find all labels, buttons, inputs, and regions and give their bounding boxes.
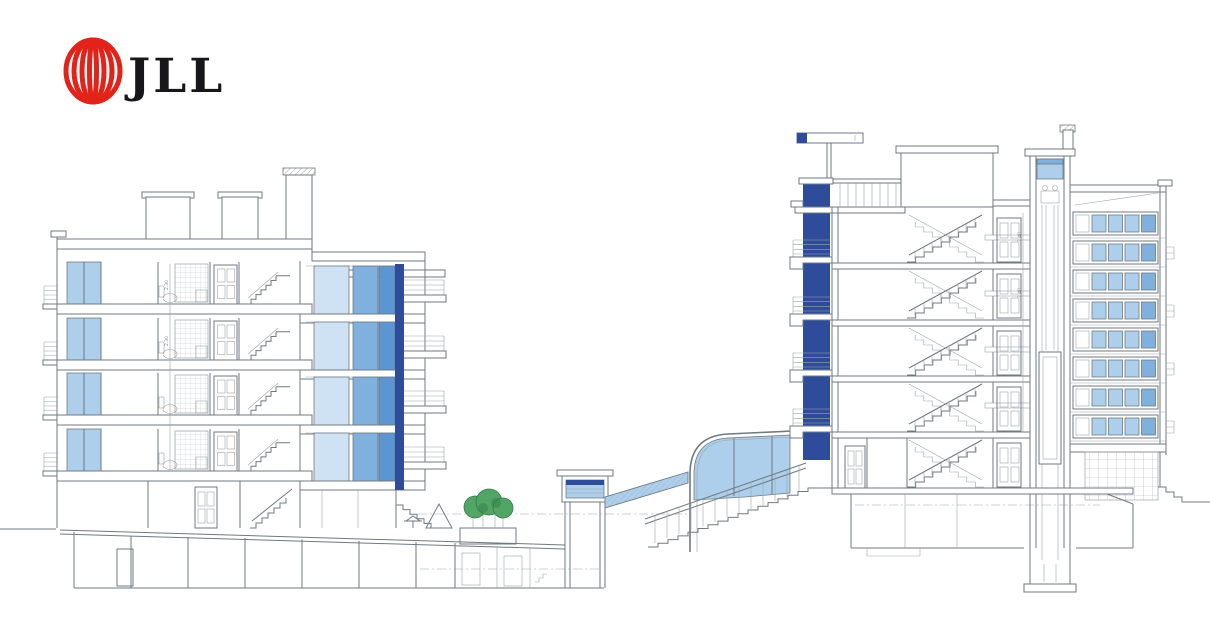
cellar-door [504,556,522,586]
roof-sign [797,133,863,179]
curved-glass-atrium [690,431,793,552]
stair-flight [907,328,984,375]
left-floor-module [43,318,312,370]
glazed-floor-module [300,433,446,490]
dim-label: 2.30 [164,280,170,290]
jll-logo-mark [66,40,120,102]
left-building-section: 2.30 2.30 [43,168,446,528]
window-row [1070,299,1166,325]
navy-mullion-stripe [395,264,404,490]
window-row [1070,415,1166,441]
window-row [1070,270,1166,296]
dim-label: 2.40 [1017,288,1023,298]
window-row [1070,386,1166,412]
stair-flight [907,384,984,431]
landing-door [997,331,1021,375]
stair-flight [907,440,984,487]
glazed-floor-module [300,322,446,379]
planter [460,528,516,544]
underground-garage [60,530,604,588]
shaft-skylight [557,470,613,588]
window-row [1070,357,1166,383]
stair-flight [907,215,984,262]
garden-area [404,470,688,588]
landing-doors [997,218,1021,487]
penthouse [901,153,993,207]
play-tent [426,504,452,528]
parasol [404,521,422,528]
window-row [1070,241,1166,267]
jll-logo: JLL [66,40,225,104]
window-row [1070,328,1166,354]
stair-flight [907,271,984,318]
left-floor-module [43,429,312,481]
hoist-machine [1041,186,1059,204]
right-building-section: 2.40 2.40 [790,125,1182,592]
chimney-cap [283,168,315,175]
penthouse-cap [896,146,998,153]
glazed-floor-module [300,377,446,434]
trees [464,489,513,528]
landing-door [997,443,1021,487]
drawing-page: JLL [0,0,1210,638]
elevator-pit [1024,584,1076,592]
sloped-skylight [605,472,688,508]
right-building-basement [851,494,1133,556]
elevator-mast [1063,130,1073,149]
left-building-roof [51,168,445,277]
dim-label: 2.40 [1017,232,1023,242]
left-floor-module [43,262,312,314]
right-wing [1070,180,1182,502]
landing-door [997,387,1021,431]
jll-logo-text: JLL [124,49,225,104]
left-floor-module [43,373,312,425]
window-row [1070,212,1166,238]
navy-curtain-wall [790,178,833,460]
elevator-shaft [1024,125,1076,592]
stair-core [907,215,984,487]
dim-label: 2.30 [164,336,170,346]
elevator-car [1039,352,1061,464]
